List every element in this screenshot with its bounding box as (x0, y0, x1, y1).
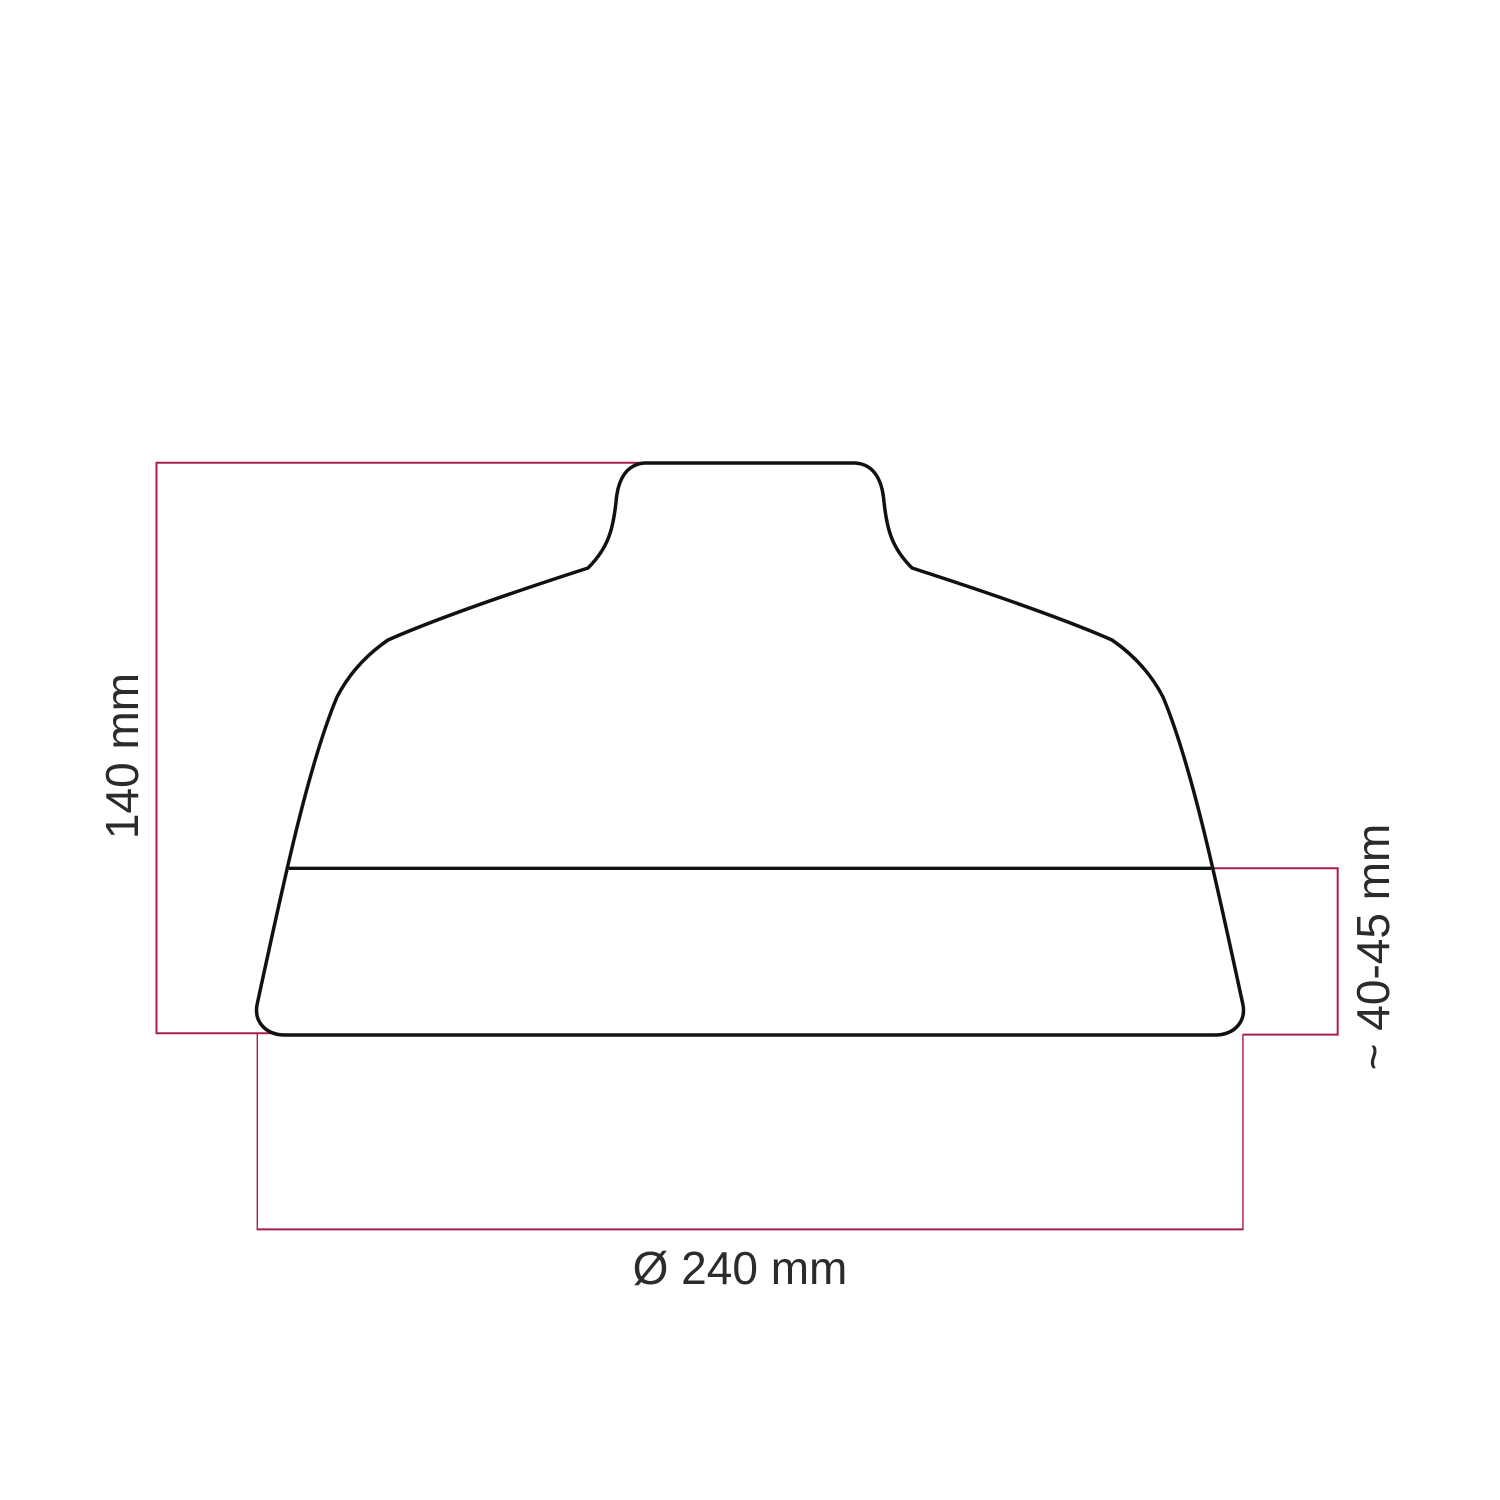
svg-text:~ 40-45 mm: ~ 40-45 mm (1347, 824, 1399, 1071)
svg-text:Ø 240 mm: Ø 240 mm (633, 1242, 848, 1294)
svg-text:140 mm: 140 mm (96, 673, 148, 839)
